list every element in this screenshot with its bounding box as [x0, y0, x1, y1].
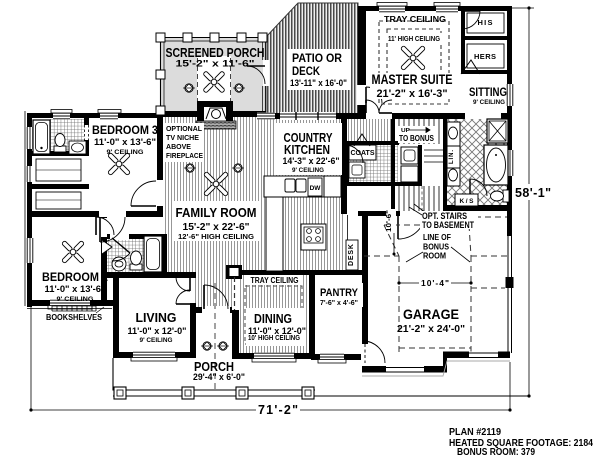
svg-text:OPTIONAL: OPTIONAL	[166, 126, 203, 133]
svg-text:9' CEILING: 9' CEILING	[57, 296, 94, 303]
svg-text:TO BONUS: TO BONUS	[399, 134, 435, 143]
svg-text:MASTER SUITE: MASTER SUITE	[372, 71, 453, 87]
svg-text:21'-2" x 16'-3": 21'-2" x 16'-3"	[377, 88, 448, 100]
svg-text:10' HIGH CEILING: 10' HIGH CEILING	[248, 335, 300, 342]
svg-text:11' HIGH CEILING: 11' HIGH CEILING	[388, 34, 440, 43]
svg-text:58'-1": 58'-1"	[515, 186, 551, 200]
svg-text:FIREPLACE: FIREPLACE	[166, 153, 203, 160]
svg-text:HERS: HERS	[474, 52, 496, 61]
svg-text:14'-3" x 22'-6": 14'-3" x 22'-6"	[283, 156, 340, 167]
svg-text:TRAY CEILING: TRAY CEILING	[384, 15, 446, 24]
svg-text:TV NICHE: TV NICHE	[166, 135, 199, 142]
svg-text:BONUS ROOM: 379: BONUS ROOM: 379	[457, 446, 535, 456]
svg-text:13'-11" x 16'-0": 13'-11" x 16'-0"	[290, 78, 347, 88]
svg-text:DINING: DINING	[254, 311, 292, 326]
svg-text:ABOVE: ABOVE	[166, 144, 191, 151]
svg-text:BEDROOM 2: BEDROOM 2	[42, 272, 108, 284]
svg-text:10'-4": 10'-4"	[421, 278, 449, 288]
svg-text:DESK: DESK	[348, 244, 355, 266]
svg-text:12'-6" HIGH CEILING: 12'-6" HIGH CEILING	[178, 232, 254, 241]
svg-text:BEDROOM 3: BEDROOM 3	[92, 125, 158, 137]
svg-text:LINE OF: LINE OF	[423, 232, 451, 242]
svg-text:ROOM: ROOM	[423, 251, 446, 261]
svg-text:21'-2" x 24'-0": 21'-2" x 24'-0"	[397, 323, 465, 335]
svg-text:DECK: DECK	[292, 66, 321, 78]
svg-text:LIN.: LIN.	[449, 150, 455, 164]
svg-text:15'-2" x 11'-6": 15'-2" x 11'-6"	[176, 59, 255, 70]
svg-text:9' CEILING: 9' CEILING	[107, 149, 144, 156]
svg-text:LIVING: LIVING	[136, 311, 177, 325]
svg-text:9' CEILING: 9' CEILING	[140, 337, 173, 344]
svg-text:11'-0" x 13'-6": 11'-0" x 13'-6"	[94, 137, 156, 148]
svg-text:KITCHEN: KITCHEN	[284, 142, 330, 157]
svg-text:10'-6": 10'-6"	[384, 210, 393, 232]
svg-text:11'-0" x 13'-6": 11'-0" x 13'-6"	[45, 284, 106, 295]
svg-text:7'-6" x 4'-6": 7'-6" x 4'-6"	[320, 300, 358, 307]
svg-text:GARAGE: GARAGE	[403, 306, 459, 322]
svg-text:DW: DW	[310, 185, 322, 192]
svg-text:HIS: HIS	[478, 18, 493, 27]
svg-text:9' CEILING: 9' CEILING	[473, 99, 505, 106]
svg-text:PATIO OR: PATIO OR	[292, 53, 343, 65]
svg-text:K/S: K/S	[460, 198, 475, 205]
svg-text:PANTRY: PANTRY	[320, 287, 359, 299]
svg-text:FAMILY ROOM: FAMILY ROOM	[176, 205, 257, 220]
svg-text:BOOKSHELVES: BOOKSHELVES	[46, 313, 103, 322]
svg-text:SITTING: SITTING	[469, 87, 507, 99]
svg-text:COATS: COATS	[351, 150, 375, 157]
svg-text:29'-4" x 6'-0": 29'-4" x 6'-0"	[193, 372, 245, 383]
svg-text:TRAY CEILING: TRAY CEILING	[251, 276, 299, 285]
svg-text:TO BASEMENT: TO BASEMENT	[422, 220, 474, 230]
svg-text:9' CEILING: 9' CEILING	[292, 167, 324, 174]
svg-text:71'-2": 71'-2"	[258, 403, 298, 417]
svg-text:11'-0" x 12'-0": 11'-0" x 12'-0"	[128, 326, 187, 337]
